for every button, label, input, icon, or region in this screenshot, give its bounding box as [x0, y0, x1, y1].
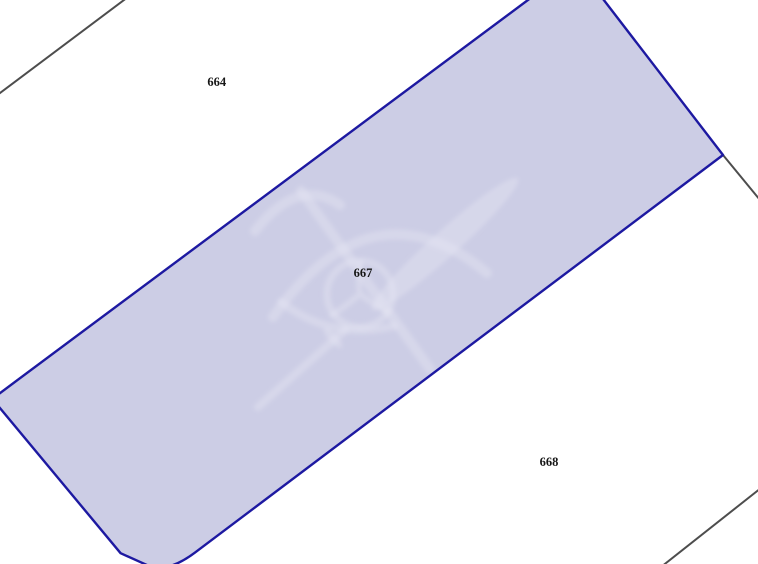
svg-text:667: 667 — [354, 266, 373, 280]
svg-text:668: 668 — [540, 455, 559, 469]
svg-text:664: 664 — [207, 75, 227, 89]
